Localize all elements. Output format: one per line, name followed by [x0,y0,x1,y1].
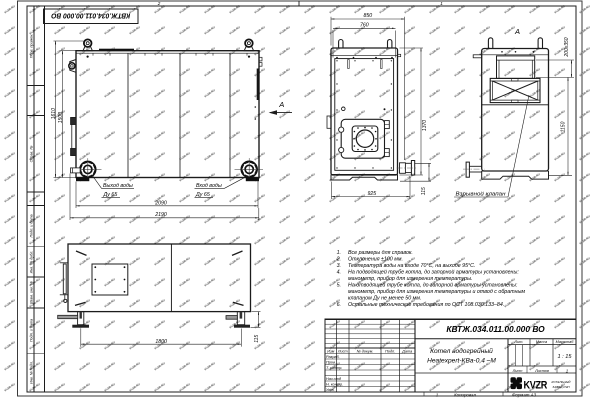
svg-text:6.: 6. [337,302,341,308]
svg-text:1370: 1370 [422,120,428,131]
svg-text:1800: 1800 [155,339,167,345]
svg-text:2090: 2090 [154,200,167,206]
svg-text:А: А [514,27,520,36]
svg-text:Изм: Изм [327,349,334,353]
svg-text:Вход воды: Вход воды [196,183,222,189]
svg-text:Перв. примен.: Перв. примен. [30,34,34,59]
svg-text:манометр, прибор для измерения: манометр, прибор для измерения температу… [348,289,525,295]
svg-text:Heatexpert-КВа-0,4 –М: Heatexpert-КВа-0,4 –М [427,358,496,365]
svg-text:Подп. и дата: Подп. и дата [29,319,33,342]
svg-text:1: 1 [440,1,443,6]
svg-text:Дата: Дата [401,349,412,353]
svg-text:925: 925 [367,191,376,197]
svg-text:Остальные технические требован: Остальные технические требования по ОСТ … [348,302,504,308]
svg-text:Взрывной клапан: Взрывной клапан [456,190,506,197]
svg-text:1500: 1500 [58,112,64,123]
svg-text:На отводящей трубе котла, до з: На отводящей трубе котла, до запорной ар… [348,281,518,288]
svg-text:Лист: Лист [512,369,523,373]
svg-text:115: 115 [254,335,260,343]
svg-text:Лист: Лист [337,349,348,353]
svg-text:Копировал: Копировал [454,392,476,397]
svg-text:2: 2 [157,1,161,6]
svg-text:КОТЕЛЬНЫЙ: КОТЕЛЬНЫЙ [552,380,572,384]
svg-text:Лит.: Лит. [514,340,524,344]
svg-text:Утв.: Утв. [326,388,335,392]
svg-text:760: 760 [360,23,369,29]
svg-text:Отклонения ±100 мм.: Отклонения ±100 мм. [348,256,403,262]
svg-text:2.: 2. [336,256,341,262]
svg-text:5.: 5. [337,282,341,288]
svg-text:Инв. № дубл.: Инв. № дубл. [29,251,33,274]
svg-text:КВТЖ.034.011.00.000 ВО: КВТЖ.034.011.00.000 ВО [51,12,131,19]
svg-text:1 : 15: 1 : 15 [558,354,573,360]
svg-text:Температура воды на входе 70°С: Температура воды на входе 70°С, на выход… [348,263,475,269]
svg-text:№ докум.: № докум. [357,349,374,353]
svg-text:На подводящей трубе котла, до: На подводящей трубе котла, до запорной а… [348,268,519,275]
svg-text:115: 115 [421,187,427,195]
svg-text:Листов: Листов [534,369,549,373]
svg-text:3.: 3. [337,263,341,269]
svg-text:1150: 1150 [561,121,567,132]
svg-text:клапаном Ду не менее 50 мм.: клапаном Ду не менее 50 мм. [348,295,421,301]
svg-text:КВТЖ.034.011.00.000 ВО: КВТЖ.034.011.00.000 ВО [446,324,545,334]
svg-text:А: А [278,100,284,109]
svg-text:850: 850 [363,13,372,19]
svg-text:Выход воды: Выход воды [103,183,133,189]
svg-text:2190: 2190 [154,212,167,218]
svg-text:Справ. №: Справ. № [30,146,34,163]
svg-text:Пров.: Пров. [326,360,336,364]
svg-text:Инв. № подл.: Инв. № подл. [29,361,33,384]
svg-text:Взам. инв. №: Взам. инв. № [29,281,33,304]
svg-text:манометр, прибор для измерения: манометр, прибор для измерения температу… [348,276,472,282]
svg-text:200х350: 200х350 [564,37,570,57]
svg-text:Масштаб: Масштаб [556,340,575,344]
svg-text:Нач.отд: Нач.отд [326,377,341,381]
svg-text:Масса: Масса [536,340,547,344]
svg-text:4.: 4. [337,269,341,275]
svg-text:KVZR: KVZR [524,380,548,392]
svg-text:Формат А3: Формат А3 [512,392,537,397]
svg-text:ЗАВОД РЭП: ЗАВОД РЭП [552,385,570,389]
svg-text:Т. контр.: Т. контр. [326,366,342,370]
svg-text:1.: 1. [337,250,341,256]
svg-text:1610: 1610 [51,108,57,119]
svg-text:Разраб.: Разраб. [326,355,340,359]
svg-text:Все размеры для справок.: Все размеры для справок. [348,250,413,256]
svg-text:Подп.: Подп. [385,349,395,353]
svg-text:Котел водогрейный: Котел водогрейный [430,347,493,355]
svg-text:Подп. и дата: Подп. и дата [30,214,34,237]
svg-text:Н. контр.: Н. контр. [326,382,343,386]
